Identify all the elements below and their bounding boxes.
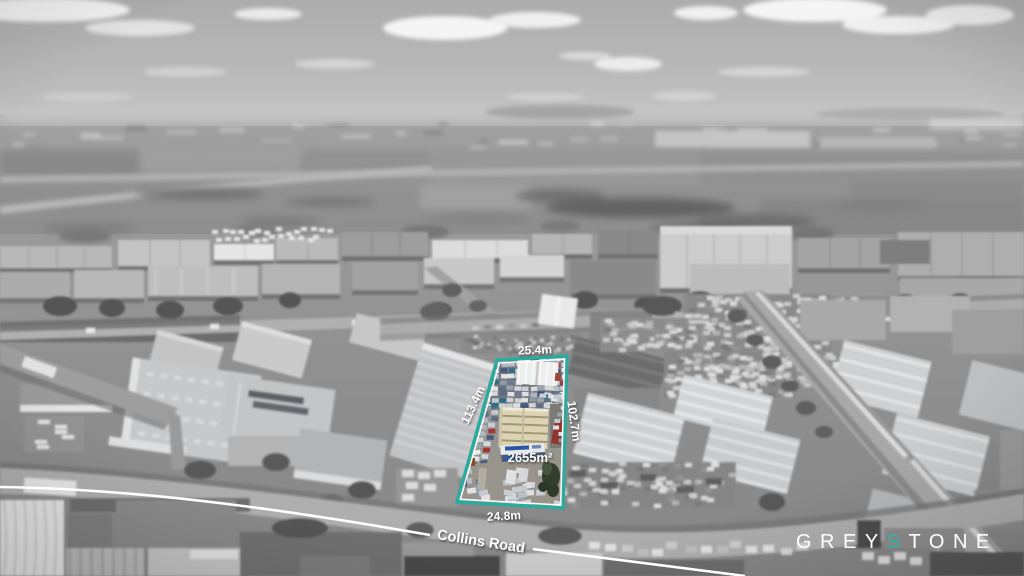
svg-text:GREYSTONE: GREYSTONE — [796, 531, 998, 553]
svg-text:25.4m: 25.4m — [518, 342, 552, 357]
svg-text:2655m²: 2655m² — [508, 450, 553, 465]
svg-text:24.8m: 24.8m — [487, 508, 522, 524]
